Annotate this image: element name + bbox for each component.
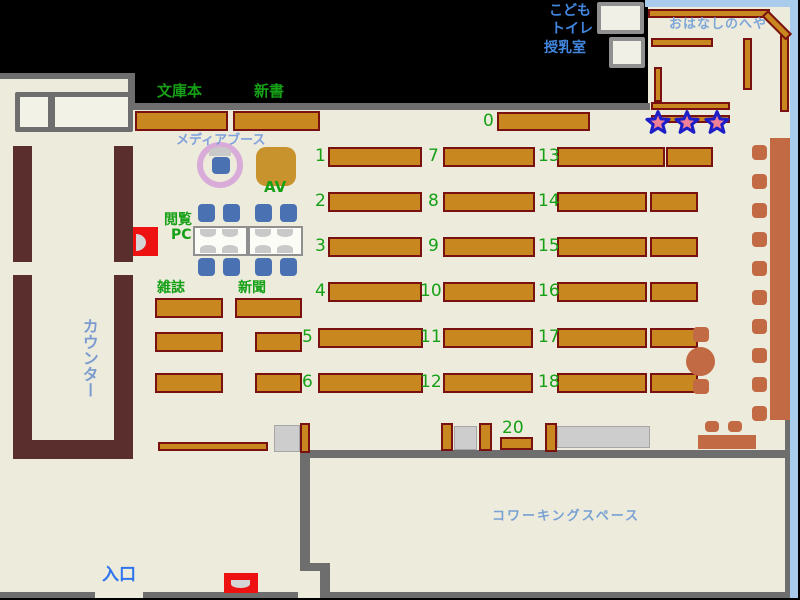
bookshelf — [135, 111, 228, 131]
label-nursing-room: 授乳室 — [544, 41, 586, 56]
bookshelf — [318, 373, 423, 393]
bookshelf — [328, 282, 422, 302]
bookshelf — [651, 102, 730, 110]
bookshelf — [158, 442, 268, 451]
star-marker-icon — [674, 110, 700, 136]
wall — [128, 103, 650, 110]
star-marker-icon — [645, 110, 671, 136]
chair — [728, 421, 742, 432]
label-coworking-space: コワーキングスペース — [492, 510, 640, 524]
label-entrance: 入口 — [102, 567, 136, 585]
shelf-number-8: 8 — [428, 191, 439, 211]
gate-sensor — [231, 580, 250, 588]
bookshelf — [441, 423, 453, 451]
chair — [280, 204, 297, 222]
media-booth-screen — [209, 147, 231, 156]
shelf-number-16: 16 — [538, 281, 560, 301]
label-pc: PC — [171, 228, 192, 243]
bookshelf — [155, 373, 223, 393]
bookshelf — [318, 328, 423, 348]
building-edge — [645, 0, 798, 7]
label-newspapers: 新聞 — [238, 281, 266, 296]
work-table — [557, 426, 650, 448]
wall — [300, 452, 310, 570]
bench — [698, 435, 756, 449]
bookshelf — [233, 111, 320, 131]
chair — [752, 319, 767, 334]
bookshelf — [155, 298, 223, 318]
bookshelf — [443, 373, 533, 393]
chair — [705, 421, 719, 432]
bookshelf — [155, 332, 223, 352]
label-toilet: トイレ — [551, 22, 593, 37]
bookshelf — [255, 373, 302, 393]
chair — [752, 145, 767, 160]
chair — [752, 203, 767, 218]
work-table — [454, 426, 477, 450]
chair — [280, 258, 297, 276]
pc-monitor — [200, 229, 216, 237]
facility-room — [609, 37, 645, 68]
bookshelf — [235, 298, 302, 318]
chair — [198, 258, 215, 276]
bookshelf — [443, 282, 535, 302]
bookshelf — [443, 192, 535, 212]
chair — [752, 348, 767, 363]
facility-room — [597, 2, 644, 34]
bookshelf — [443, 147, 535, 167]
chair — [255, 258, 272, 276]
label-media-booth: メディアブース — [176, 134, 265, 148]
chair — [693, 327, 709, 342]
pc-monitor — [277, 229, 293, 237]
chair — [752, 261, 767, 276]
wall — [0, 73, 135, 79]
pc-monitor — [277, 245, 293, 253]
round-table — [686, 347, 715, 376]
shelf-number-7: 7 — [428, 146, 439, 166]
bookshelf — [557, 282, 647, 302]
bookshelf — [557, 237, 647, 257]
bookshelf — [328, 147, 422, 167]
shelf-number-15: 15 — [538, 236, 560, 256]
bookshelf — [780, 32, 789, 112]
chair — [693, 379, 709, 394]
pc-monitor — [255, 245, 271, 253]
bookshelf — [497, 112, 590, 131]
shelf-number-12: 12 — [420, 372, 442, 392]
shelf-number-9: 9 — [428, 236, 439, 256]
service-counter — [13, 146, 32, 262]
bookshelf — [500, 437, 533, 450]
service-counter — [13, 440, 133, 459]
service-counter — [13, 275, 32, 459]
wall — [320, 592, 787, 598]
window-counter — [770, 138, 790, 420]
library-floor-map: こどもトイレ授乳室おはなしのへや文庫本新書メディアブースAV閲覧PC雑誌新聞カウ… — [0, 0, 800, 600]
bookshelf — [557, 147, 665, 167]
building-edge — [790, 0, 798, 598]
bookshelf — [443, 328, 533, 348]
bookshelf — [650, 282, 698, 302]
shelf-number-17: 17 — [538, 327, 560, 347]
bookshelf — [650, 373, 698, 393]
label-paperbacks: 文庫本 — [157, 84, 202, 100]
pc-monitor — [222, 229, 238, 237]
chair — [198, 204, 215, 222]
chair — [752, 377, 767, 392]
pc-monitor — [200, 245, 216, 253]
bookshelf — [743, 38, 752, 90]
label-browsing: 閲覧 — [164, 213, 192, 228]
bookshelf — [666, 147, 713, 167]
shelf-number-13: 13 — [538, 146, 560, 166]
wall — [320, 563, 330, 595]
service-counter — [114, 275, 133, 440]
shelf-number-0: 0 — [483, 111, 494, 131]
shelf-number-1: 1 — [315, 146, 326, 166]
chair — [223, 258, 240, 276]
service-counter — [114, 146, 133, 262]
bookshelf — [255, 332, 302, 352]
back-office-desk — [15, 92, 53, 132]
bookshelf — [557, 192, 647, 212]
star-marker-icon — [704, 110, 730, 136]
wall — [300, 450, 787, 458]
bookshelf — [545, 423, 557, 452]
back-office-desk — [50, 92, 133, 132]
chair — [255, 204, 272, 222]
pc-monitor — [222, 245, 238, 253]
label-storytime-room: おはなしのへや — [669, 18, 767, 32]
label-counter: カウンター — [80, 318, 97, 398]
bookshelf — [300, 423, 310, 453]
shelf-number-6: 6 — [302, 372, 313, 392]
shelf-number-11: 11 — [420, 327, 442, 347]
label-kids: こども — [549, 4, 591, 19]
bookshelf — [654, 67, 662, 102]
wall — [143, 592, 298, 598]
bookshelf — [479, 423, 492, 451]
shelf-number-18: 18 — [538, 372, 560, 392]
pc-monitor — [255, 229, 271, 237]
bookshelf — [443, 237, 535, 257]
bookshelf — [557, 328, 647, 348]
shelf-number-2: 2 — [315, 191, 326, 211]
bookshelf — [650, 192, 698, 212]
label-av: AV — [264, 180, 286, 196]
shelf-number-10: 10 — [420, 281, 442, 301]
chair — [752, 406, 767, 421]
bookshelf — [328, 192, 422, 212]
bookshelf — [557, 373, 647, 393]
shelf-number-14: 14 — [538, 191, 560, 211]
bookshelf — [328, 237, 422, 257]
bookshelf — [650, 237, 698, 257]
shelf-number-5: 5 — [302, 327, 313, 347]
work-table — [274, 425, 300, 452]
shelf-number-3: 3 — [315, 236, 326, 256]
shelf-number-4: 4 — [315, 281, 326, 301]
label-new-books: 新書 — [254, 84, 284, 100]
chair — [223, 204, 240, 222]
chair — [752, 290, 767, 305]
bookshelf — [651, 38, 713, 47]
chair — [752, 232, 767, 247]
label-magazines: 雑誌 — [157, 281, 185, 296]
wall — [0, 592, 95, 598]
shelf-number-20: 20 — [502, 418, 524, 438]
chair — [212, 157, 230, 174]
bookshelf — [650, 328, 698, 348]
chair — [752, 174, 767, 189]
